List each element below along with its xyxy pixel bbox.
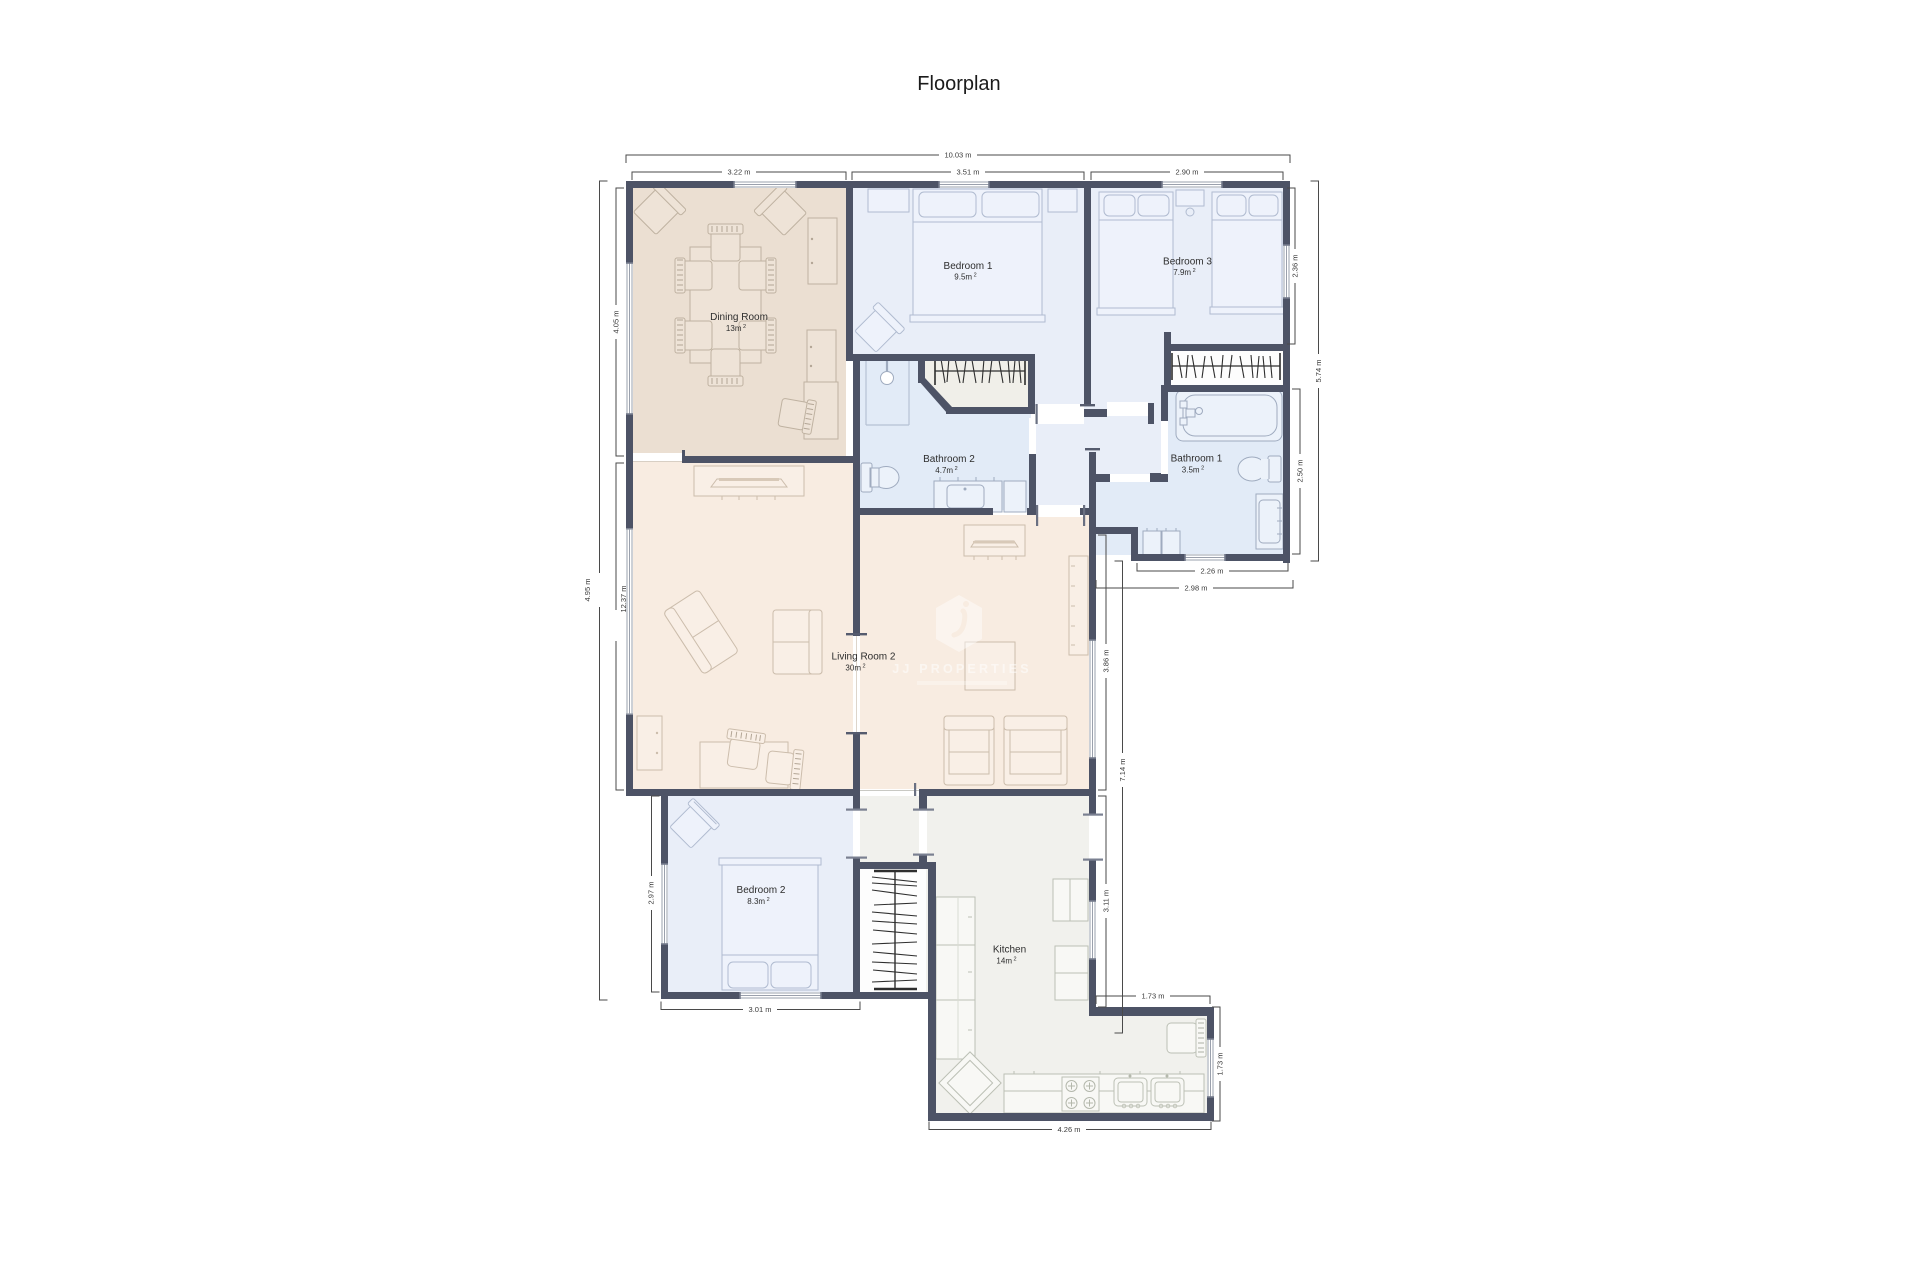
svg-text:3.01 m: 3.01 m <box>749 1005 772 1014</box>
svg-text:Bathroom 2: Bathroom 2 <box>923 454 975 465</box>
svg-text:7.14 m: 7.14 m <box>1118 759 1127 782</box>
svg-text:3.11 m: 3.11 m <box>1102 890 1111 912</box>
svg-text:2.50 m: 2.50 m <box>1296 460 1305 483</box>
svg-text:Kitchen: Kitchen <box>993 945 1026 956</box>
svg-text:2.26 m: 2.26 m <box>1201 567 1224 576</box>
svg-text:1.73 m: 1.73 m <box>1216 1053 1225 1076</box>
svg-text:2.90 m: 2.90 m <box>1176 168 1199 177</box>
svg-text:1.73 m: 1.73 m <box>1142 992 1165 1001</box>
svg-text:2.36 m: 2.36 m <box>1291 255 1300 278</box>
svg-text:JJ PROPERTIES: JJ PROPERTIES <box>892 662 1032 676</box>
svg-text:10.03 m: 10.03 m <box>944 151 971 160</box>
svg-text:4.26 m: 4.26 m <box>1058 1125 1081 1134</box>
svg-text:Floorplan: Floorplan <box>917 73 1000 95</box>
svg-text:5.74 m: 5.74 m <box>1314 360 1323 383</box>
svg-text:3.51 m: 3.51 m <box>957 168 980 177</box>
svg-text:4.05 m: 4.05 m <box>612 311 621 334</box>
svg-text:Living Room 2: Living Room 2 <box>832 652 896 663</box>
svg-text:2.98 m: 2.98 m <box>1185 584 1208 593</box>
svg-text:Bathroom 1: Bathroom 1 <box>1171 454 1223 465</box>
svg-text:12.37 m: 12.37 m <box>619 585 628 612</box>
svg-text:Bedroom 2: Bedroom 2 <box>737 885 786 896</box>
svg-text:Dining Room: Dining Room <box>710 312 768 323</box>
svg-text:3.86 m: 3.86 m <box>1102 650 1111 673</box>
svg-text:4.95 m: 4.95 m <box>583 579 592 602</box>
svg-text:2.97 m: 2.97 m <box>647 882 656 905</box>
svg-text:3.22 m: 3.22 m <box>728 168 751 177</box>
svg-text:Bedroom 3: Bedroom 3 <box>1163 257 1212 268</box>
svg-text:Bedroom 1: Bedroom 1 <box>944 261 993 272</box>
